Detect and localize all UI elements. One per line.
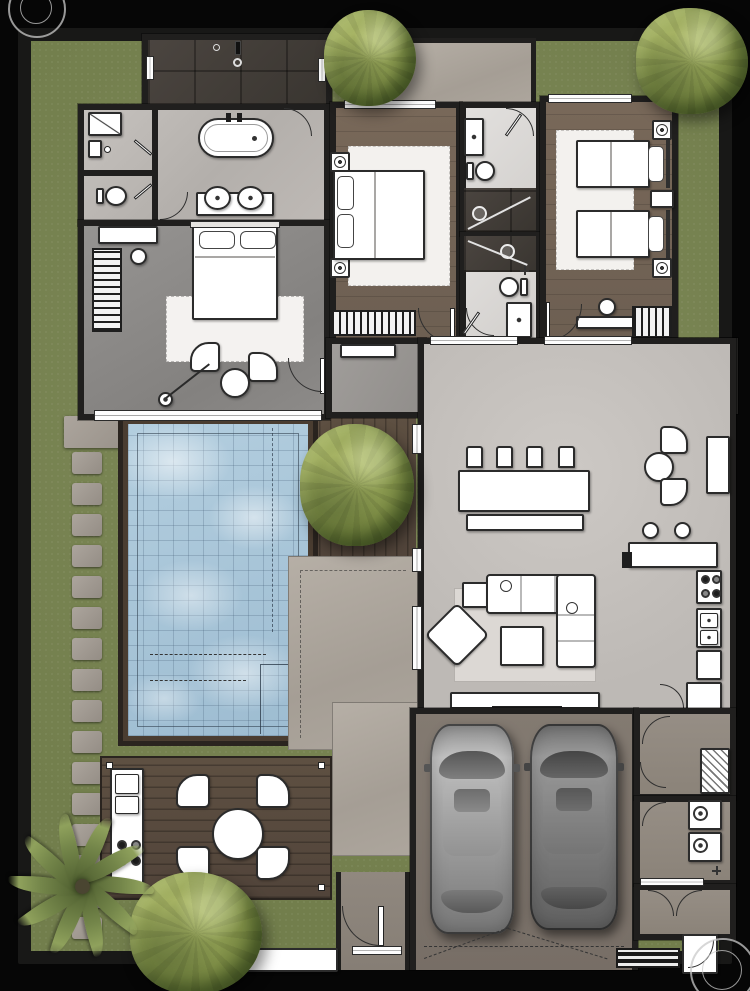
dining-bench [466, 514, 584, 531]
wardrobe-rack [330, 310, 416, 336]
toilet-bowl [475, 161, 495, 181]
window [412, 548, 422, 572]
dresser [98, 226, 158, 244]
tree [324, 10, 416, 106]
vanity-sink [204, 186, 231, 210]
drain-grate [616, 948, 680, 968]
wall-counter [706, 436, 730, 494]
bathtub-rim [204, 124, 268, 152]
burner [701, 589, 710, 598]
window [94, 410, 322, 421]
stepping-stone [72, 762, 102, 784]
nightstand [650, 190, 674, 208]
side-table [220, 368, 250, 398]
storage-closet [700, 748, 730, 794]
bed-headboard [666, 140, 670, 188]
sofa-cushion-line [520, 576, 522, 612]
car-windshield [540, 751, 609, 778]
compass-icon [702, 950, 742, 990]
stepping-stone [72, 576, 102, 598]
washer-drum [693, 806, 708, 821]
floor-plan-stage [0, 0, 750, 991]
stepping-stone [72, 607, 102, 629]
bar-stool [642, 522, 659, 539]
blanket-fold [610, 212, 612, 256]
sofa-cushion-line [558, 640, 594, 642]
pillow [337, 214, 354, 248]
twin-bed [576, 140, 650, 188]
burner [712, 589, 721, 598]
kitchen-counter [696, 650, 722, 680]
powder-sink [88, 140, 102, 158]
burner [712, 575, 721, 584]
car-rear-window [541, 887, 606, 910]
stepping-stone [72, 731, 102, 753]
sofa-chaise [556, 574, 596, 668]
window [412, 424, 422, 454]
shower-head [500, 244, 515, 259]
car [430, 724, 514, 934]
toilet-tank [96, 188, 104, 204]
wardrobe-rack [632, 306, 672, 338]
walkway-threshold [352, 946, 402, 955]
car [530, 724, 618, 930]
bar-end-cap [622, 552, 632, 568]
car-sunroof [556, 788, 593, 811]
tree [636, 8, 748, 114]
dining-table [458, 470, 590, 512]
toilet-bowl [105, 186, 127, 206]
window [544, 336, 632, 345]
sink-basin [700, 613, 718, 628]
twin-bed [576, 210, 650, 258]
stepping-stone [72, 545, 102, 567]
car-mirror [513, 764, 520, 772]
nightstand-lamp [652, 258, 672, 278]
vanity [506, 302, 532, 338]
stepping-stone [72, 669, 102, 691]
vanity-sink [237, 186, 264, 210]
car-windshield [439, 751, 505, 778]
pillow [199, 231, 235, 249]
dining-chair [526, 446, 543, 468]
stepping-stone [72, 452, 102, 474]
car-rear-window [441, 890, 503, 913]
shower-drain [233, 58, 242, 67]
bathtub-drain [252, 136, 257, 141]
car-mirror [617, 763, 624, 771]
skylight-shaft [88, 112, 122, 136]
vanity [464, 118, 484, 156]
dining-chair [496, 446, 513, 468]
stepping-stone [72, 700, 102, 722]
dining-chair [466, 446, 483, 468]
bed-headboard [666, 210, 670, 258]
stepping-stone [72, 514, 102, 536]
porch-threshold [640, 878, 704, 886]
blanket-fold [610, 142, 612, 186]
sofa-cushion-line [558, 614, 594, 616]
patio-slider [412, 606, 422, 670]
wardrobe-rack [92, 248, 122, 332]
shower-valve [213, 44, 220, 51]
faucet-knob [104, 146, 111, 153]
pool-step-line [150, 654, 266, 655]
nightstand-lamp [330, 258, 350, 278]
nightstand-lamp [330, 152, 350, 172]
car-sunroof [454, 789, 489, 812]
pool-step-line [150, 680, 246, 681]
bar-counter [628, 542, 718, 568]
dining-chair [558, 446, 575, 468]
throw-pillow [500, 580, 512, 592]
car-mirror [524, 763, 531, 771]
bar-stool [674, 522, 691, 539]
shower-mixer [236, 42, 240, 54]
console-table [576, 316, 634, 329]
patio-dashed-edge [300, 570, 406, 738]
wc-partition-wall [152, 108, 158, 222]
pillow [648, 216, 664, 252]
sink-basin [700, 630, 718, 645]
stepping-stone [72, 638, 102, 660]
window [548, 94, 632, 103]
tree [300, 424, 414, 546]
palm-tree [2, 806, 160, 964]
wc-partition-wall [84, 170, 154, 176]
deck-light [318, 884, 325, 891]
window [430, 336, 518, 345]
tub-faucet [237, 113, 242, 122]
blanket-fold [374, 172, 376, 258]
deck-light [318, 762, 325, 769]
pillow [240, 231, 276, 249]
burner [701, 575, 710, 584]
stool [598, 298, 616, 316]
window [146, 56, 154, 80]
pool-lane-line [272, 428, 273, 632]
nightstand-lamp [652, 120, 672, 140]
stool [130, 248, 147, 265]
blanket-fold [195, 256, 275, 258]
faucet-icon [712, 866, 721, 875]
faucet-icon [520, 266, 529, 275]
side-table [462, 582, 488, 608]
dryer-drum [693, 838, 708, 853]
console-table [340, 344, 396, 358]
stepping-stone [72, 483, 102, 505]
toilet-tank [520, 278, 528, 296]
toilet-tank [466, 162, 474, 180]
bed-headboard [190, 221, 280, 228]
shower-head [472, 206, 487, 221]
car-mirror [424, 764, 431, 772]
throw-pillow [566, 602, 578, 614]
tub-faucet [226, 113, 231, 122]
outdoor-sink-basin [115, 774, 139, 794]
pillow [337, 176, 354, 210]
toilet-bowl [499, 277, 519, 297]
pillow [648, 146, 664, 182]
coffee-table [500, 626, 544, 666]
